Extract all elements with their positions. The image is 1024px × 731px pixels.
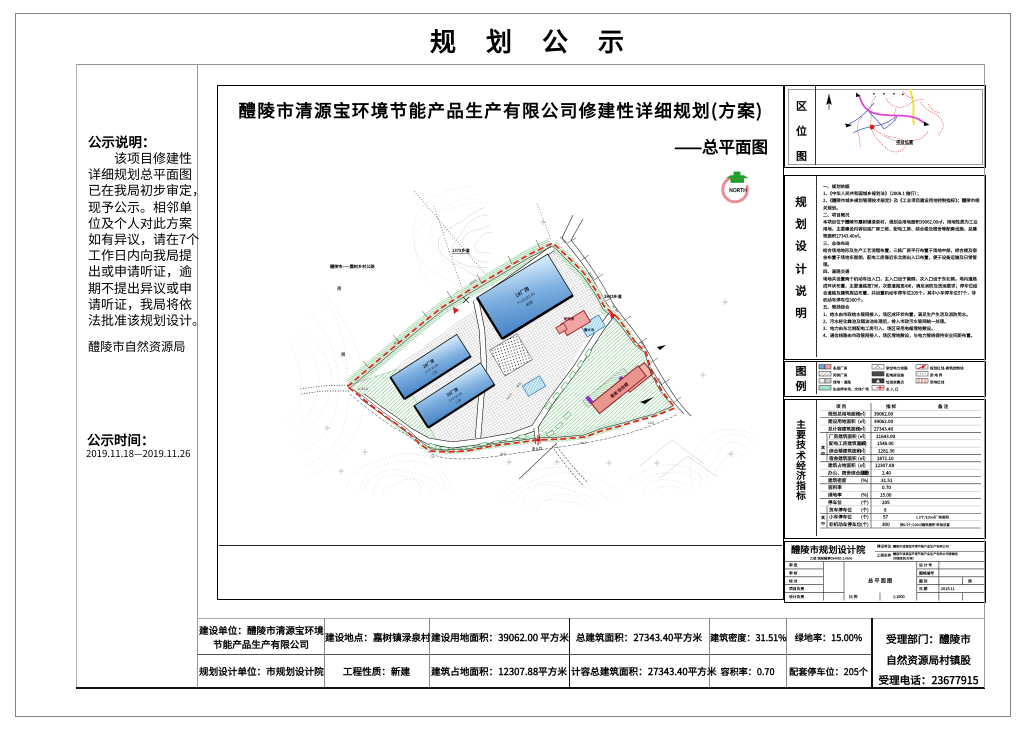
svg-text:项目负责: 项目负责 — [789, 586, 804, 592]
svg-text:(个): (个) — [861, 515, 869, 521]
svg-text:非机动车停车位: 非机动车停车位 — [829, 522, 862, 528]
svg-text:综合楼建筑面积: 综合楼建筑面积 — [829, 448, 862, 454]
svg-text:(%): (%) — [861, 478, 869, 484]
svg-text:规划红线-建筑控制线: 规划红线-建筑控制线 — [930, 366, 964, 372]
svg-text:详细规划(方案): 详细规划(方案) — [893, 555, 914, 560]
svg-text:39062.00: 39062.00 — [873, 419, 894, 425]
svg-text:(㎡): (㎡) — [858, 447, 866, 454]
svg-text:容积率: 容积率 — [827, 485, 842, 491]
svg-text:8: 8 — [884, 507, 887, 513]
svg-text:15.00: 15.00 — [880, 493, 892, 499]
svg-text:配电房: 配电房 — [564, 316, 575, 321]
svg-text:40.2: 40.2 — [580, 440, 586, 445]
svg-text:停车位: 停车位 — [828, 500, 842, 506]
svg-text:日 期: 日 期 — [919, 586, 928, 592]
svg-text:审 核: 审 核 — [789, 570, 798, 576]
svg-text:河: 河 — [340, 352, 346, 358]
svg-text:24.30: 24.30 — [559, 235, 568, 245]
svg-text:建设用地面积: 建设用地面积 — [827, 419, 856, 425]
svg-text:建筑密度: 建筑密度 — [827, 478, 847, 484]
svg-text:按0.5个/100㎡建筑面积 单独设置: 按0.5个/100㎡建筑面积 单独设置 — [900, 522, 950, 527]
svg-text:工程名称: 工程名称 — [877, 553, 891, 559]
svg-text:审 定: 审 定 — [789, 563, 798, 569]
svg-text:(㎡): (㎡) — [859, 440, 867, 447]
svg-text:用地红线: 用地红线 — [929, 380, 945, 386]
svg-text:0.70: 0.70 — [882, 485, 891, 491]
svg-text:配电房设施: 配电房设施 — [886, 373, 904, 379]
svg-text:架空电力线路: 架空电力线路 — [885, 366, 908, 372]
svg-text:厂房建筑面积: 厂房建筑面积 — [829, 434, 857, 440]
svg-text:1281.30: 1281.30 — [878, 448, 895, 454]
svg-text:57: 57 — [882, 515, 889, 521]
svg-text:设计负责: 设计负责 — [789, 594, 804, 600]
svg-text:宿舍建筑面积: 宿舍建筑面积 — [828, 456, 857, 462]
svg-text:(㎡): (㎡) — [858, 411, 866, 418]
svg-text:多层厂房: 多层厂房 — [833, 366, 848, 372]
svg-text:2019.11: 2019.11 — [941, 587, 955, 592]
svg-text:丙类厂房: 丙类厂房 — [833, 373, 848, 379]
svg-text:项 目: 项 目 — [836, 404, 846, 410]
svg-text:规: 规 — [967, 578, 972, 584]
svg-text:规划总用地面积: 规划总用地面积 — [828, 412, 861, 418]
svg-text:图档编号: 图档编号 — [919, 570, 934, 576]
svg-text:(%): (%) — [861, 493, 869, 499]
svg-text:1375乡道: 1375乡道 — [452, 248, 470, 254]
svg-text:备 注: 备 注 — [937, 404, 949, 410]
svg-text:设 计 号: 设 计 号 — [919, 563, 932, 569]
svg-text:1:1000: 1:1000 — [893, 595, 905, 600]
svg-text:生态停车场、文体广场: 生态停车场、文体广场 — [833, 387, 869, 393]
svg-text:用 地 界: 用 地 界 — [929, 373, 943, 379]
svg-text:(㎡): (㎡) — [858, 433, 866, 440]
svg-text:31.51: 31.51 — [880, 478, 893, 484]
svg-text:总 平 面 图: 总 平 面 图 — [868, 578, 892, 585]
svg-text:12307.88: 12307.88 — [875, 463, 895, 469]
svg-text:2871.10: 2871.10 — [877, 456, 894, 462]
svg-text:醴陵市——嘉树乡村公路: 醴陵市——嘉树乡村公路 — [330, 264, 376, 270]
svg-text:垃圾收集点: 垃圾收集点 — [886, 380, 904, 386]
svg-text:乙级 城规编第094085 2.0606: 乙级 城规编第094085 2.0606 — [810, 556, 852, 561]
svg-text:300: 300 — [881, 522, 890, 528]
svg-text:(层): (层) — [861, 471, 869, 477]
svg-text:NORTH: NORTH — [729, 187, 747, 194]
svg-text:绿地·道路: 绿地·道路 — [833, 380, 851, 386]
svg-text:15.0: 15.0 — [648, 420, 654, 425]
svg-text:(个): (个) — [861, 500, 869, 506]
svg-text:2.40: 2.40 — [882, 471, 891, 477]
svg-text:校 对: 校 对 — [789, 578, 798, 584]
svg-text:1.0个/100㎡厂房面积: 1.0个/100㎡厂房面积 — [916, 515, 950, 521]
svg-text:1548.00: 1548.00 — [877, 441, 894, 447]
svg-text:指 标: 指 标 — [886, 404, 897, 410]
svg-text:21643.00: 21643.00 — [876, 434, 896, 440]
svg-text:河: 河 — [336, 286, 342, 292]
svg-text:建设单位: 建设单位 — [876, 544, 891, 550]
svg-text:总计容建筑面积: 总计容建筑面积 — [828, 426, 861, 432]
svg-text:醴陵市清源宝环境节能产品生产有限公司: 醴陵市清源宝环境节能产品生产有限公司 — [893, 544, 949, 549]
svg-text:3847乡道: 3847乡道 — [603, 294, 622, 300]
svg-text:39062.00: 39062.00 — [873, 412, 894, 418]
svg-text:(㎡): (㎡) — [858, 455, 866, 462]
svg-text:蓄水池: 蓄水池 — [584, 327, 595, 332]
svg-text:7.0: 7.0 — [430, 454, 435, 459]
svg-text:27343.40: 27343.40 — [874, 426, 894, 432]
svg-text:(个): (个) — [861, 507, 869, 513]
svg-text:(㎡): (㎡) — [858, 462, 866, 469]
svg-text:项目位置: 项目位置 — [895, 140, 914, 146]
svg-text:X=35.6: X=35.6 — [358, 386, 368, 391]
svg-text:醴陵市规划设计院: 醴陵市规划设计院 — [791, 542, 866, 556]
svg-text:(㎡): (㎡) — [858, 418, 866, 425]
svg-text:(个): (个) — [861, 522, 869, 528]
svg-text:主 入 口: 主 入 口 — [886, 387, 899, 393]
svg-text:绿地率: 绿地率 — [828, 493, 842, 499]
svg-text:205: 205 — [882, 500, 890, 506]
svg-text:24.0: 24.0 — [500, 451, 506, 456]
svg-text:建筑占地面积: 建筑占地面积 — [827, 463, 856, 469]
svg-text:中: 中 — [821, 451, 825, 457]
svg-text:主入口: 主入口 — [532, 446, 543, 451]
svg-text:比 例: 比 例 — [849, 594, 858, 600]
svg-text:货车停车位: 货车停车位 — [828, 507, 852, 513]
svg-text:小车停车位: 小车停车位 — [828, 515, 852, 521]
svg-text:中: 中 — [821, 521, 825, 527]
svg-text:(㎡): (㎡) — [858, 425, 866, 432]
svg-text:图 别: 图 别 — [919, 578, 928, 584]
